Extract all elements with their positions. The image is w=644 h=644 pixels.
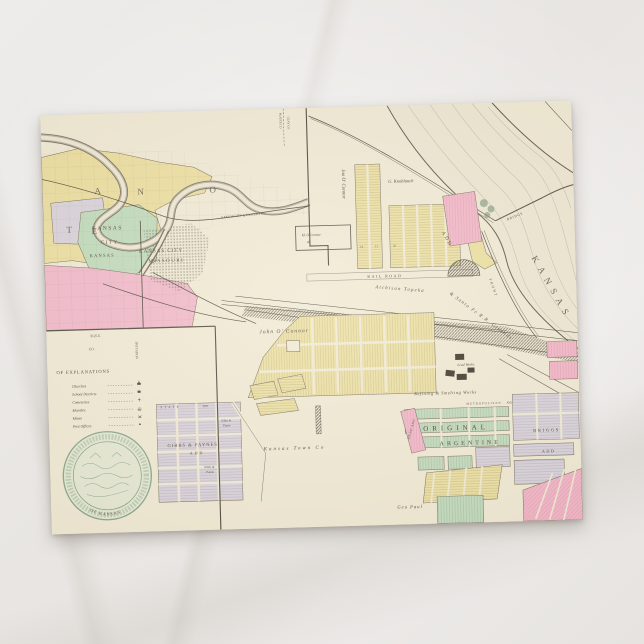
gibbs-small-label: Payne <box>222 423 231 427</box>
school-tract-box <box>287 340 300 351</box>
jno-oconnor-label: Jno O' Connor <box>340 169 346 199</box>
svg-text:Mines: Mines <box>72 416 83 420</box>
rail-road-label: RAIL ROAD <box>367 273 402 279</box>
briggs-add-label: ADD <box>542 448 556 453</box>
svg-text:Churches: Churches <box>72 384 87 388</box>
kc-ks-label: CITY <box>101 240 119 245</box>
lead-works-label: Lead Works <box>456 362 475 367</box>
gibbs-small-label: Payne <box>205 470 214 474</box>
kc-mo-label: MISSOURI <box>148 259 184 265</box>
state-line-label: STATE LINE <box>135 341 139 359</box>
range-label: R.25 E <box>90 334 101 338</box>
svg-text:Post Offices: Post Offices <box>72 424 92 429</box>
gibbs-small-label: Gibbs & <box>204 465 215 469</box>
school-symbol <box>138 391 141 393</box>
m-oconnor-label: M. O'Connor <box>301 233 322 238</box>
svg-text:Cemeteries: Cemeteries <box>72 400 90 404</box>
svg-text:Marshes: Marshes <box>71 408 86 412</box>
hatched-strip <box>315 406 321 434</box>
marble-background: A N O T E KANSAS CITY KANSAS KANSAS CITY… <box>0 0 644 644</box>
briggs-label: BRIGGS <box>533 427 560 433</box>
geo-paul-label: Geo Paul <box>397 504 423 510</box>
county-letter: O <box>209 185 216 195</box>
kc-ks-label: KANSAS <box>90 252 115 258</box>
state-st-label: STATE <box>160 405 180 410</box>
svg-text:School Districts: School Districts <box>72 392 97 397</box>
county-letter: N <box>137 187 144 197</box>
m-oconnor-tract: M. O'Connor 40 <box>295 225 351 251</box>
map-artwork: A N O T E KANSAS CITY KANSAS KANSAS CITY… <box>40 101 582 535</box>
gibbs-add-label2: ADD <box>190 450 205 455</box>
gibbs-small-label: Gibbs & <box>221 418 232 422</box>
kc-ks-label: KANSAS <box>92 225 123 232</box>
metropolitan-ave-label: AVE <box>506 400 512 404</box>
platte-co-label: PLATTE CO <box>278 113 282 130</box>
county-letter: A <box>94 186 101 196</box>
ave-label: AVE <box>202 404 208 408</box>
knoblauch-label: G. Knoblauch <box>388 178 414 184</box>
postcard-image[interactable]: A N O T E KANSAS CITY KANSAS KANSAS CITY… <box>40 101 582 535</box>
county-letter: T <box>66 225 72 235</box>
clay-co-label: CLAY CO <box>286 117 290 131</box>
co-label: CO. <box>89 347 95 351</box>
